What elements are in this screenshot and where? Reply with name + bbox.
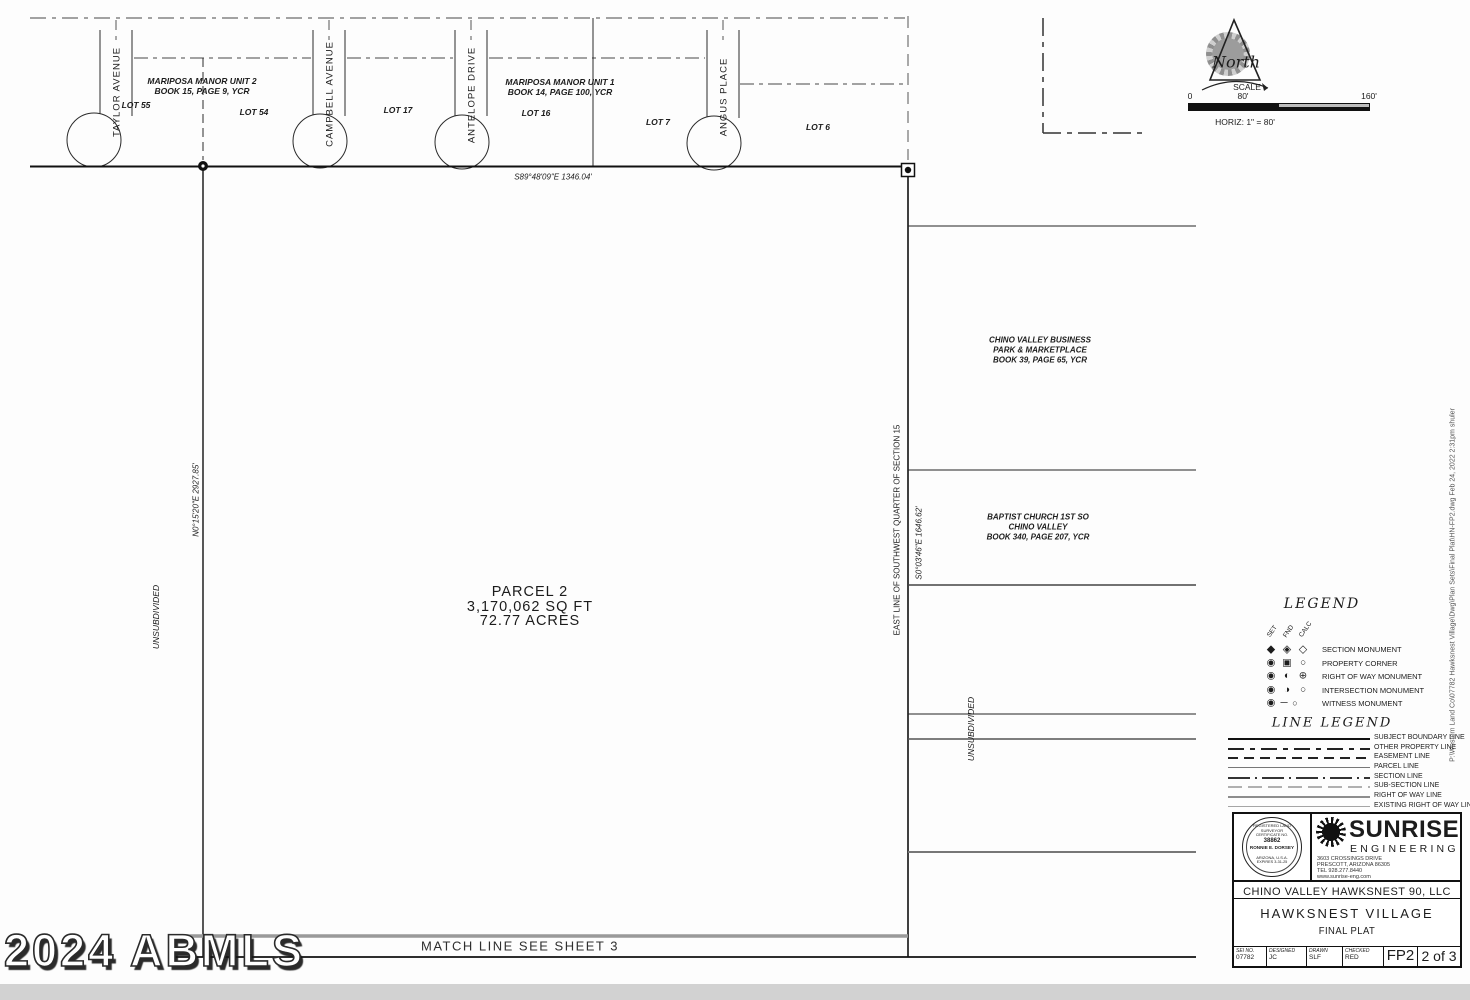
legend-sym-icon: ◑ <box>1284 685 1290 696</box>
east-section-line-label: EAST LINE OF SOUTHWEST QUARTER OF SECTIO… <box>893 425 902 636</box>
scale-horiz-note: HORIZ: 1" = 80' <box>1215 117 1275 127</box>
legend-row-label: PROPERTY CORNER <box>1322 659 1398 668</box>
lot-7-label: LOT 7 <box>646 117 670 127</box>
lot-6-label: LOT 6 <box>806 122 830 132</box>
line-legend-label: EASEMENT LINE <box>1374 753 1430 760</box>
seal-name: RONNIE E. DORSEY <box>1243 845 1301 851</box>
legend-sym-icon: ◉ <box>1267 671 1276 682</box>
scale-tick-0: 0 <box>1188 91 1193 101</box>
campbell-culdesac-bulb <box>293 114 347 168</box>
field-designed: DESIGNED JC <box>1267 947 1307 966</box>
angus-culdesac-bulb <box>687 116 741 170</box>
line-legend-label: SUB-SECTION LINE <box>1374 782 1439 789</box>
plat-sheet: TAYLOR AVENUE CAMPBELL AVENUE ANTELOPE D… <box>0 0 1470 1000</box>
lot-55-label: LOT 55 <box>122 100 151 110</box>
surveyor-seal: REGISTERED LAND SURVEYOR CERTIFICATE NO.… <box>1242 817 1302 877</box>
north-boundary-bearing: S89°48'09"E 1346.04' <box>514 173 592 182</box>
lot-54-label: LOT 54 <box>240 107 269 117</box>
legend-sym-icon: ◈ <box>1283 643 1291 656</box>
neighbor-business-line1: CHINO VALLEY BUSINESS <box>989 336 1091 345</box>
legend-sym-icon: ◇ <box>1299 643 1307 656</box>
subdivision-unit1-book: BOOK 14, PAGE 100, YCR <box>508 87 613 97</box>
legend-sym-icon: ─ <box>1280 698 1287 709</box>
project-row: HAWKSNEST VILLAGE FINAL PLAT <box>1234 898 1460 946</box>
scale-tick-160: 160' <box>1361 91 1377 101</box>
watermark: 2024 ABMLS <box>4 925 305 977</box>
street-centerline-dashes <box>116 20 723 40</box>
neighbor-business-line3: BOOK 39, PAGE 65, YCR <box>993 356 1087 365</box>
field-checked: CHECKED RED <box>1343 947 1384 966</box>
firm-logo-cell: SUNRISE ENGINEERING 3603 CROSSINGS DRIVE… <box>1312 814 1460 880</box>
parcel-area-acres: 72.77 ACRES <box>480 613 580 629</box>
neighbor-church-line2: CHINO VALLEY <box>1009 523 1068 532</box>
street-label-taylor: TAYLOR AVENUE <box>112 47 123 137</box>
street-label-angus: ANGUS PLACE <box>719 58 730 137</box>
line-swatch-easement <box>1228 757 1370 759</box>
fields-row: SEI NO. 07782 DESIGNED JC DRAWN SLF CHEC… <box>1234 946 1460 966</box>
lot-16-label: LOT 16 <box>522 108 551 118</box>
firm-name: SUNRISE <box>1349 816 1459 844</box>
title-block: REGISTERED LAND SURVEYOR CERTIFICATE NO.… <box>1232 812 1462 968</box>
firm-sub: ENGINEERING <box>1350 843 1459 855</box>
client-row: CHINO VALLEY HAWKSNEST 90, LLC <box>1234 880 1460 898</box>
lot-17-label: LOT 17 <box>384 105 413 115</box>
subdivision-unit1-name: MARIPOSA MANOR UNIT 1 <box>505 77 614 87</box>
east-boundary-bearing: S0°03'46"E 1646.62' <box>915 506 924 579</box>
legend-sym-icon: ○ <box>1300 685 1306 696</box>
legend-sym-icon: ○ <box>1292 698 1297 708</box>
legend-sym-icon: ◆ <box>1267 643 1275 656</box>
field-sei-no: SEI NO. 07782 <box>1234 947 1267 966</box>
legend-sym-icon: ◉ <box>1267 698 1276 709</box>
legend-row-label: RIGHT OF WAY MONUMENT <box>1322 672 1422 681</box>
seal-number: 38862 <box>1243 838 1301 846</box>
antelope-culdesac-bulb <box>435 115 489 169</box>
legend-title: LEGEND <box>1284 596 1360 612</box>
line-swatch-other-property <box>1228 748 1370 750</box>
surveyor-seal-cell: REGISTERED LAND SURVEYOR CERTIFICATE NO.… <box>1234 814 1312 880</box>
line-swatch-section <box>1228 777 1370 779</box>
subdivision-unit2-book: BOOK 15, PAGE 9, YCR <box>154 86 249 96</box>
sheet-number: 2 of 3 <box>1418 947 1460 966</box>
line-swatch-parcel <box>1228 767 1370 768</box>
unsubdivided-east-label: UNSUBDIVIDED <box>966 697 976 761</box>
field-value: 07782 <box>1236 954 1264 962</box>
legend-sym-icon: ○ <box>1300 658 1306 669</box>
legend-sym-icon: ⊕ <box>1299 671 1307 682</box>
field-value: RED <box>1345 954 1381 962</box>
street-label-campbell: CAMPBELL AVENUE <box>325 41 336 147</box>
parcel-name: PARCEL 2 <box>492 584 569 600</box>
legend-sym-icon: ▣ <box>1282 658 1291 669</box>
legend-row-label: SECTION MONUMENT <box>1322 645 1402 654</box>
project-name: HAWKSNEST VILLAGE <box>1234 906 1460 921</box>
legend-sym-icon: ◉ <box>1267 685 1276 696</box>
legend-row-label: INTERSECTION MONUMENT <box>1322 686 1424 695</box>
line-legend-label: SECTION LINE <box>1374 773 1423 780</box>
line-legend-label: RIGHT OF WAY LINE <box>1374 792 1442 799</box>
line-swatch-sub-section <box>1228 786 1370 788</box>
line-swatch-right-of-way <box>1228 796 1370 798</box>
legend-sym-icon: ◐ <box>1284 671 1290 682</box>
scale-bar <box>1188 103 1370 111</box>
scan-edge-strip <box>0 984 1470 1000</box>
neighbor-church-line1: BAPTIST CHURCH 1ST SO <box>987 513 1089 522</box>
unsubdivided-west-label: UNSUBDIVIDED <box>151 585 161 649</box>
doc-type: FINAL PLAT <box>1245 925 1448 937</box>
legend-row-label: WITNESS MONUMENT <box>1322 699 1402 708</box>
sunburst-logo-icon <box>1316 817 1346 847</box>
north-label: North <box>1212 53 1260 72</box>
neighbor-church-line3: BOOK 340, PAGE 207, YCR <box>987 533 1090 542</box>
sheet-code: FP2 <box>1384 947 1418 966</box>
field-value: SLF <box>1309 954 1340 962</box>
seal-expires: EXPIRES 3-31-25 <box>1243 860 1301 865</box>
drawing-file-path: P:\Western Land Co\07782 Hawksnest Villa… <box>1450 408 1457 762</box>
subdivision-unit2-name: MARIPOSA MANOR UNIT 2 <box>147 76 256 86</box>
legend-sym-icon: ◉ <box>1267 658 1276 669</box>
line-legend-label: EXISTING RIGHT OF WAY LINE <box>1374 802 1470 809</box>
west-boundary-bearing: N0°15'20"E 2927.85' <box>192 463 201 537</box>
neighbor-business-line2: PARK & MARKETPLACE <box>993 346 1087 355</box>
street-label-antelope: ANTELOPE DRIVE <box>467 47 478 143</box>
line-swatch-subject-boundary <box>1228 738 1370 740</box>
line-swatch-existing-row <box>1228 806 1370 807</box>
match-line-label: MATCH LINE SEE SHEET 3 <box>421 939 619 954</box>
line-legend-label: OTHER PROPERTY LINE <box>1374 744 1456 751</box>
seal-arc-top: REGISTERED LAND SURVEYOR <box>1243 823 1301 833</box>
scale-tick-80: 80' <box>1237 91 1248 101</box>
row-line-top-right <box>1043 18 1146 133</box>
client-name: CHINO VALLEY HAWKSNEST 90, LLC <box>1243 886 1451 898</box>
field-drawn: DRAWN SLF <box>1307 947 1343 966</box>
field-value: JC <box>1269 954 1304 962</box>
line-legend-title: LINE LEGEND <box>1272 716 1393 731</box>
line-legend-label: PARCEL LINE <box>1374 763 1419 770</box>
